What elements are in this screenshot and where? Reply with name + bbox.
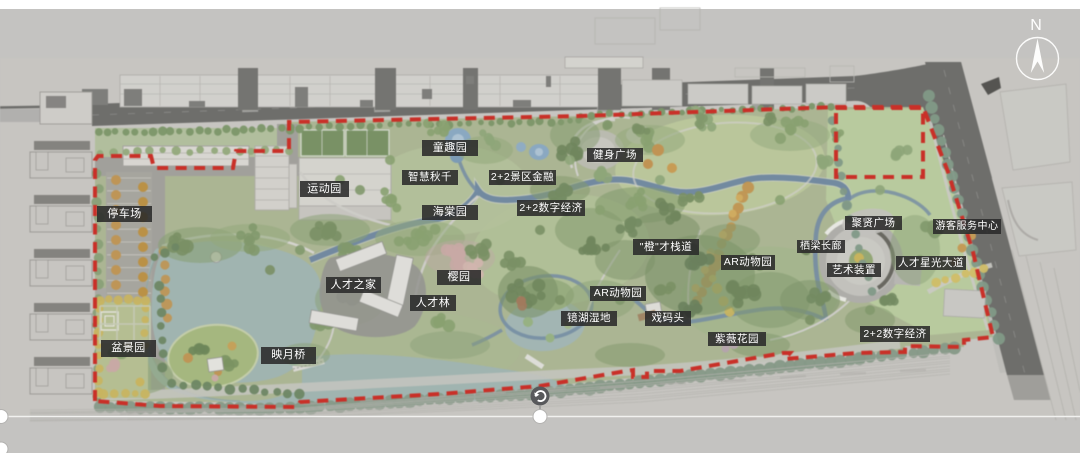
svg-text:N: N [1030,17,1042,34]
